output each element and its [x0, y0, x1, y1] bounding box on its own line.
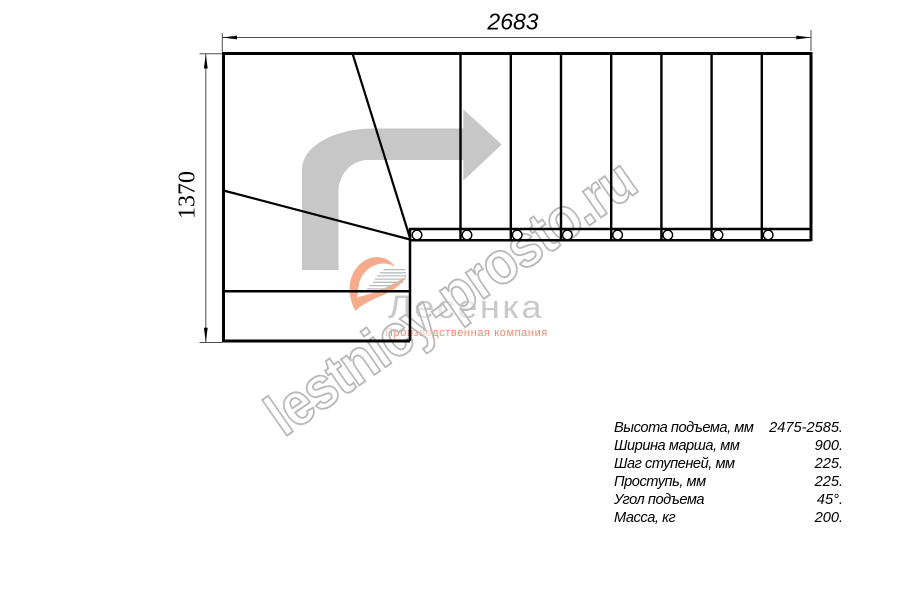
svg-text:2683: 2683: [486, 9, 538, 35]
svg-text:1370: 1370: [175, 171, 201, 219]
